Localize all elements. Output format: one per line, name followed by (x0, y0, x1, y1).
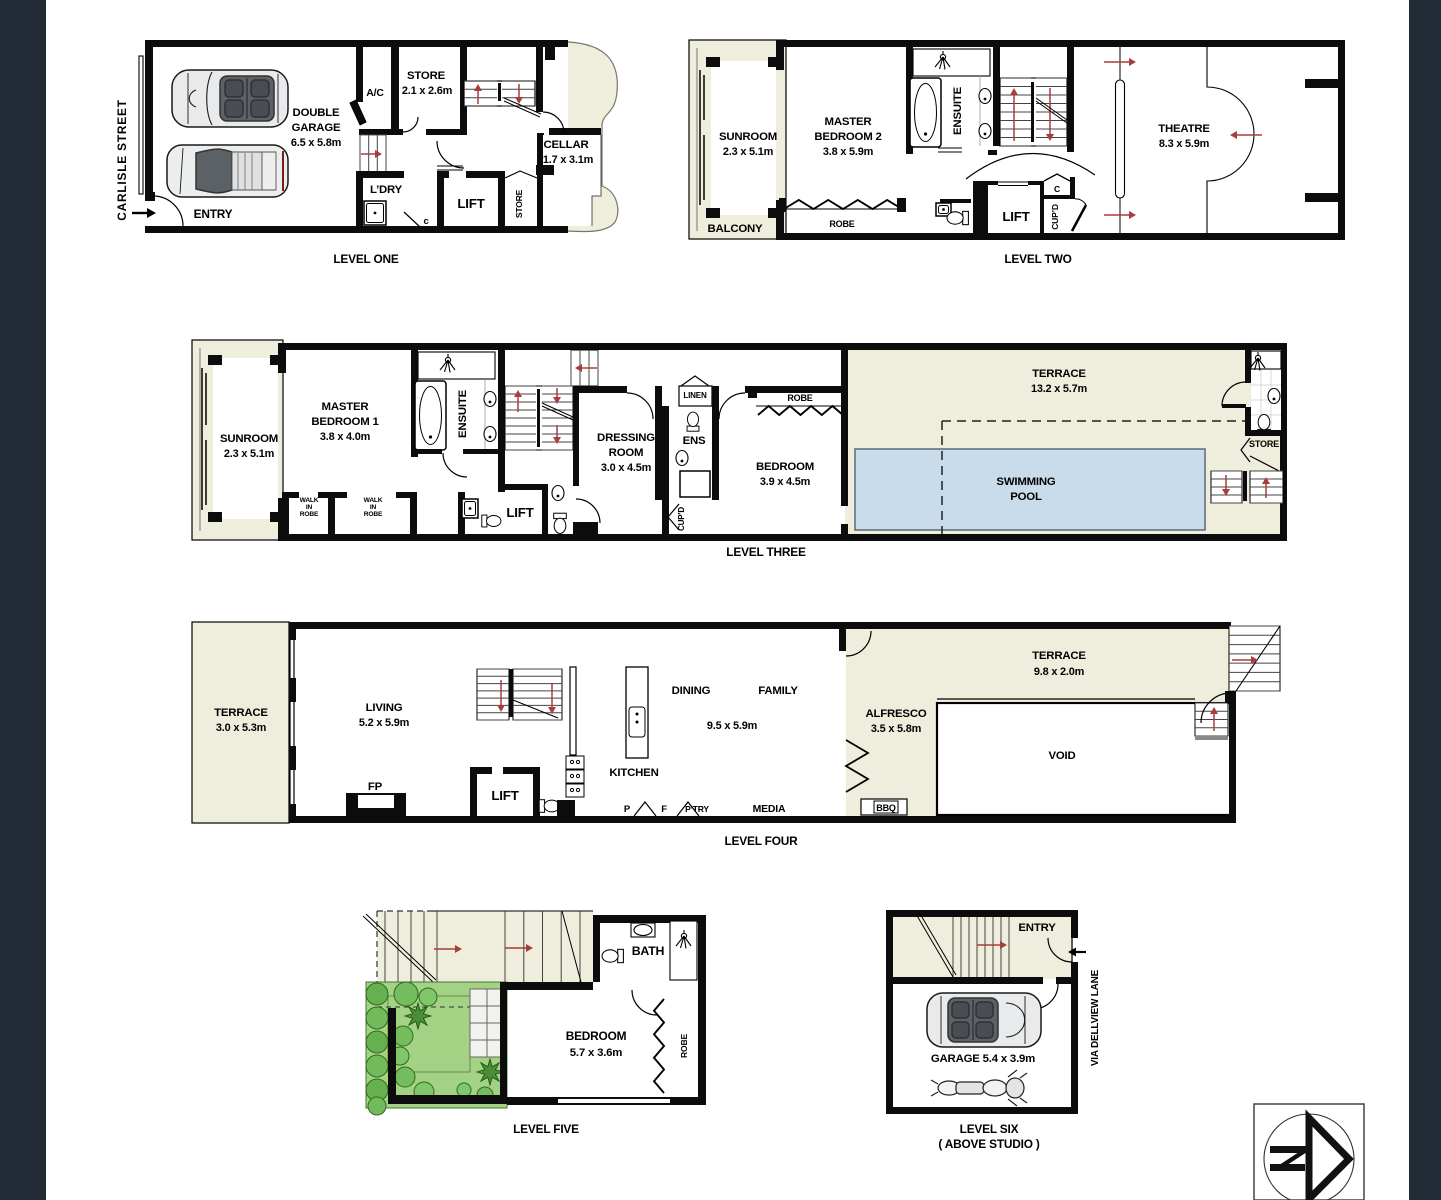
svg-text:13.2 x 5.7m: 13.2 x 5.7m (1031, 383, 1088, 395)
svg-text:ROBE: ROBE (364, 511, 383, 518)
svg-text:8.3 x 5.9m: 8.3 x 5.9m (1159, 138, 1210, 150)
svg-text:ENTRY: ENTRY (1018, 922, 1056, 934)
svg-text:MEDIA: MEDIA (753, 804, 786, 815)
svg-text:9.8 x 2.0m: 9.8 x 2.0m (1034, 666, 1085, 678)
svg-text:2.3 x 5.1m: 2.3 x 5.1m (224, 448, 275, 460)
svg-text:WALK: WALK (364, 497, 383, 504)
svg-text:VIA DELLVIEW LANE: VIA DELLVIEW LANE (1090, 969, 1101, 1066)
svg-text:LEVEL TWO: LEVEL TWO (1004, 252, 1071, 266)
svg-text:STORE: STORE (514, 189, 524, 218)
svg-text:FAMILY: FAMILY (758, 685, 798, 697)
svg-text:STORE: STORE (407, 70, 446, 82)
svg-text:ENSUITE: ENSUITE (457, 389, 469, 438)
svg-text:BEDROOM 1: BEDROOM 1 (311, 416, 379, 428)
svg-text:IN: IN (370, 504, 377, 511)
svg-text:TERRACE: TERRACE (1032, 650, 1086, 662)
svg-text:WALK: WALK (300, 497, 319, 504)
svg-text:MASTER: MASTER (825, 116, 872, 128)
svg-text:CUP’D: CUP’D (677, 507, 686, 531)
svg-text:BATH: BATH (632, 944, 665, 958)
svg-text:ROBE: ROBE (300, 511, 319, 518)
svg-text:DRESSING: DRESSING (597, 432, 655, 444)
svg-text:SUNROOM: SUNROOM (719, 131, 777, 143)
svg-text:L’DRY: L’DRY (370, 184, 403, 196)
svg-text:TERRACE: TERRACE (214, 707, 268, 719)
svg-text:LEVEL THREE: LEVEL THREE (726, 545, 806, 559)
svg-text:THEATRE: THEATRE (1158, 123, 1210, 135)
svg-text:CELLAR: CELLAR (544, 139, 589, 151)
svg-text:3.5 x 5.8m: 3.5 x 5.8m (871, 723, 922, 735)
svg-text:1.7 x 3.1m: 1.7 x 3.1m (543, 154, 594, 166)
svg-text:CARLISLE STREET: CARLISLE STREET (115, 99, 129, 221)
svg-text:3.9 x 4.5m: 3.9 x 4.5m (760, 476, 811, 488)
svg-text:5.2 x 5.9m: 5.2 x 5.9m (359, 717, 410, 729)
svg-text:9.5 x 5.9m: 9.5 x 5.9m (707, 720, 758, 732)
svg-text:MASTER: MASTER (322, 401, 369, 413)
svg-text:LEVEL SIX: LEVEL SIX (960, 1122, 1019, 1136)
svg-text:DINING: DINING (672, 685, 711, 697)
svg-text:SUNROOM: SUNROOM (220, 433, 278, 445)
svg-text:VOID: VOID (1048, 750, 1075, 762)
svg-text:3.8 x 5.9m: 3.8 x 5.9m (823, 146, 874, 158)
svg-text:LIFT: LIFT (1002, 209, 1029, 224)
svg-text:BALCONY: BALCONY (708, 223, 764, 235)
svg-text:LIFT: LIFT (491, 788, 518, 803)
svg-text:ENSUITE: ENSUITE (952, 86, 964, 135)
svg-text:IN: IN (306, 504, 313, 511)
svg-text:3.8 x 4.0m: 3.8 x 4.0m (320, 431, 371, 443)
svg-text:LIFT: LIFT (457, 196, 484, 211)
svg-text:KITCHEN: KITCHEN (609, 767, 658, 779)
svg-text:CUP’D: CUP’D (1050, 204, 1060, 230)
svg-text:3.0 x 4.5m: 3.0 x 4.5m (601, 462, 652, 474)
svg-text:POOL: POOL (1010, 491, 1042, 503)
svg-text:DOUBLE: DOUBLE (293, 107, 340, 119)
svg-text:6.5 x 5.8m: 6.5 x 5.8m (291, 137, 342, 149)
svg-text:ROBE: ROBE (829, 219, 854, 229)
svg-text:BEDROOM: BEDROOM (756, 461, 814, 473)
svg-text:ENS: ENS (683, 435, 706, 447)
svg-text:FP: FP (368, 781, 383, 793)
svg-text:P’TRY: P’TRY (685, 804, 709, 814)
svg-text:LIFT: LIFT (506, 505, 533, 520)
svg-text:5.7 x 3.6m: 5.7 x 3.6m (570, 1047, 623, 1059)
svg-text:ROBE: ROBE (679, 1034, 689, 1058)
svg-text:LEVEL ONE: LEVEL ONE (333, 252, 399, 266)
svg-text:P: P (624, 804, 631, 815)
svg-text:GARAGE: GARAGE (292, 122, 341, 134)
svg-text:2.1 x 2.6m: 2.1 x 2.6m (402, 85, 453, 97)
svg-text:3.0 x 5.3m: 3.0 x 5.3m (216, 722, 267, 734)
svg-text:ROOM: ROOM (609, 447, 644, 459)
svg-text:LEVEL FOUR: LEVEL FOUR (725, 834, 799, 848)
svg-text:C: C (1054, 184, 1060, 194)
svg-text:ROBE: ROBE (787, 393, 812, 403)
svg-text:BEDROOM: BEDROOM (566, 1029, 627, 1043)
svg-text:F: F (661, 804, 667, 815)
svg-text:BBQ: BBQ (876, 803, 896, 813)
svg-text:LIVING: LIVING (366, 702, 403, 714)
svg-text:A/C: A/C (366, 88, 384, 99)
svg-text:c: c (423, 216, 428, 227)
svg-text:LEVEL FIVE: LEVEL FIVE (513, 1122, 579, 1136)
svg-text:STORE: STORE (1249, 439, 1279, 449)
svg-text:LINEN: LINEN (683, 391, 707, 400)
svg-text:2.3 x 5.1m: 2.3 x 5.1m (723, 146, 774, 158)
svg-text:ALFRESCO: ALFRESCO (865, 708, 926, 720)
svg-text:SWIMMING: SWIMMING (996, 476, 1055, 488)
svg-text:ENTRY: ENTRY (194, 207, 233, 221)
svg-text:GARAGE 5.4 x 3.9m: GARAGE 5.4 x 3.9m (931, 1053, 1035, 1065)
svg-text:TERRACE: TERRACE (1032, 368, 1086, 380)
svg-text:BEDROOM 2: BEDROOM 2 (814, 131, 881, 143)
svg-text:( ABOVE STUDIO ): ( ABOVE STUDIO ) (938, 1137, 1040, 1151)
